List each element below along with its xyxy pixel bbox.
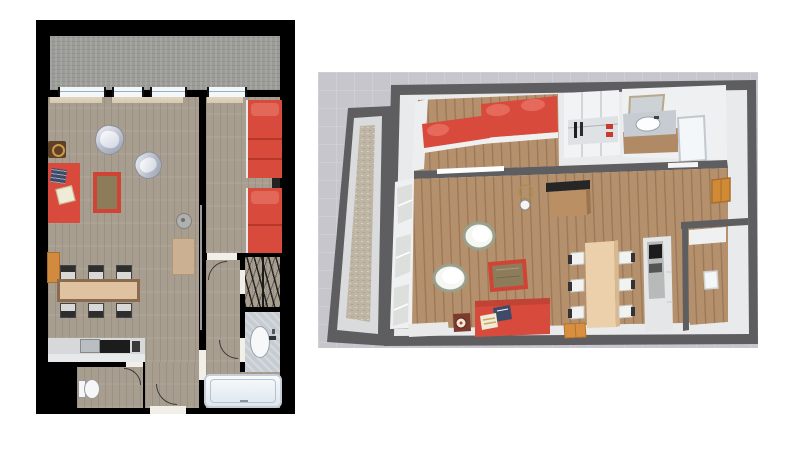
red-box (606, 124, 613, 129)
dining-chair (116, 265, 132, 280)
vanity-counter (245, 312, 280, 372)
lamp-center (181, 218, 185, 222)
floor-planner-canvas (0, 0, 800, 450)
bedroom-3d (412, 94, 559, 171)
window (207, 87, 247, 97)
living-room-3d (390, 168, 730, 338)
bed (246, 188, 282, 253)
blanket-fold (248, 138, 282, 140)
barrel-stool (453, 313, 471, 332)
toilet-bowl (84, 379, 100, 399)
window (150, 87, 187, 97)
bathtub-3d (678, 116, 706, 162)
desk-3d (550, 190, 587, 217)
stove (100, 340, 130, 353)
vanity-sink (250, 326, 270, 358)
bathroom-3d (622, 85, 727, 162)
tub-drain (240, 400, 248, 403)
blanket-fold (248, 158, 282, 160)
counter-edge (48, 354, 145, 362)
toilet-3d (704, 271, 718, 289)
area-rug (93, 172, 121, 213)
stove-knobs (132, 341, 140, 352)
dining-chair (88, 303, 104, 318)
window (58, 87, 106, 97)
curtain (50, 97, 102, 103)
terrace-floor (50, 36, 280, 90)
dining-chair (116, 303, 132, 318)
window (112, 87, 144, 97)
dining-chair (60, 265, 76, 280)
rug-3d (490, 261, 526, 290)
desk (172, 238, 195, 275)
dining-chair (60, 303, 76, 318)
sliding-door (200, 205, 202, 330)
kitchen-counter (48, 338, 145, 362)
side-table (48, 141, 66, 158)
decor-ring (52, 144, 65, 157)
armchair-3d (464, 223, 494, 249)
floor-plan-2d-view[interactable] (36, 20, 295, 414)
kitchen-sink (80, 339, 100, 353)
nightstand (272, 178, 280, 188)
closet-3d (564, 90, 620, 158)
door-opening-wc (126, 362, 143, 367)
blanket-fold (248, 224, 282, 226)
door-opening-bedroom (207, 253, 237, 260)
bed (246, 100, 282, 178)
dining-chair-3d (619, 251, 635, 318)
kitchen-3d (643, 236, 673, 332)
bed-pillow (251, 191, 279, 204)
white-pillow (55, 185, 75, 205)
curtain (207, 97, 243, 103)
curtain (112, 97, 183, 103)
bed-pillow (251, 103, 279, 116)
hanging-clothes (574, 122, 577, 138)
oven-3d (649, 244, 662, 259)
closet-rail (262, 257, 264, 307)
entry-door-3d (408, 322, 449, 337)
navy-pillow (50, 168, 67, 184)
ceiling-lamp (176, 213, 192, 229)
faucet (269, 336, 276, 340)
dining-table-3d (585, 241, 616, 328)
sofa-3d (475, 298, 550, 337)
dining-table (57, 279, 140, 302)
faucet-handle (272, 329, 275, 334)
faucet-3d (654, 116, 659, 119)
dining-chair (88, 265, 104, 280)
armchair-3d (434, 265, 466, 291)
3d-view-svg (318, 72, 758, 348)
floor-plan-3d-view[interactable] (318, 72, 758, 348)
bathtub (204, 374, 282, 408)
sofa (48, 163, 80, 223)
closet-hangers (245, 257, 280, 307)
entry-door (150, 406, 186, 414)
